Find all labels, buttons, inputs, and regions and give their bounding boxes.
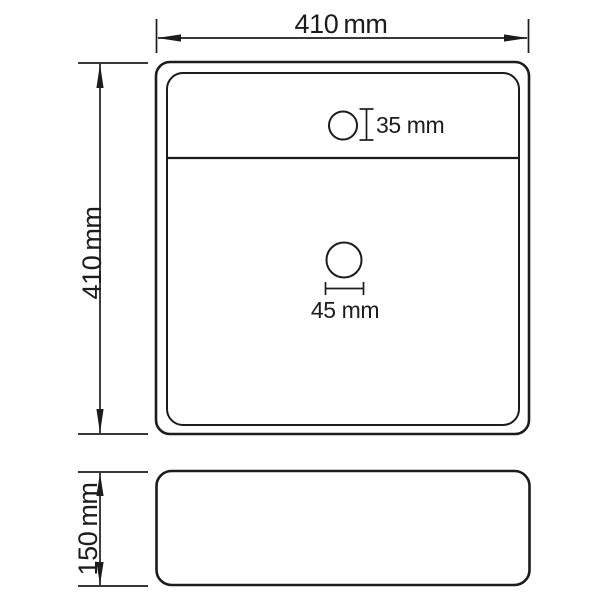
arrowhead-left xyxy=(157,34,181,41)
dimension-height: 150 mm xyxy=(73,472,148,586)
dimension-drawing-canvas: 410 mm 410 mm 35 mm 45 mm xyxy=(0,0,600,600)
height-label: 150 mm xyxy=(73,482,103,575)
dimension-faucet-hole: 35 mm xyxy=(360,109,445,140)
plan-view xyxy=(156,62,529,434)
drain-hole xyxy=(327,243,362,278)
washbasin-dimension-drawing: 410 mm 410 mm 35 mm 45 mm xyxy=(0,0,600,600)
drain-hole-label: 45 mm xyxy=(311,297,379,323)
faucet-hole-label: 35 mm xyxy=(376,112,444,138)
top-width-label: 410 mm xyxy=(294,9,387,39)
arrowhead-bottom xyxy=(96,409,103,433)
left-depth-label: 410 mm xyxy=(77,206,107,299)
sink-inner-rim xyxy=(167,73,519,425)
arrowhead-right xyxy=(504,34,528,41)
sink-side-outline xyxy=(157,471,530,585)
dimension-drain-hole: 45 mm xyxy=(311,282,379,323)
dimension-left-depth: 410 mm xyxy=(77,63,148,434)
front-view xyxy=(157,471,530,585)
arrowhead-top xyxy=(96,64,103,88)
sink-outer-outline xyxy=(156,62,529,434)
dimension-top-width: 410 mm xyxy=(157,9,529,53)
faucet-hole xyxy=(329,112,357,140)
